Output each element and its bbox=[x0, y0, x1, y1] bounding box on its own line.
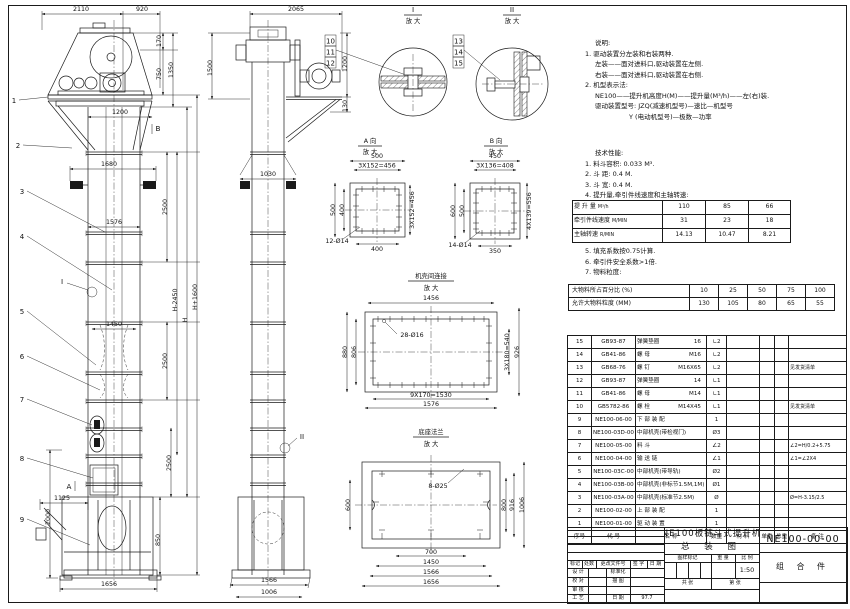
part-type: 组 合 件 bbox=[759, 552, 847, 583]
table-row: 提 升 量M³/h 1108566 bbox=[573, 201, 791, 215]
dim-label: 880 bbox=[342, 346, 349, 358]
dim-label: 1656 bbox=[423, 579, 439, 586]
process-label: 工 艺 bbox=[568, 594, 589, 603]
balloon-10: 10 bbox=[326, 38, 335, 46]
spec-line: 3. 斗 宽: 0.4 M. bbox=[575, 180, 845, 191]
dim-label: H bbox=[182, 317, 189, 322]
bom-row: 2NE100-02-00上 部 装 配1 bbox=[568, 505, 847, 518]
dim-label: 2065 bbox=[288, 6, 304, 13]
dim-label: 920 bbox=[136, 6, 148, 13]
dim-label: 926 bbox=[514, 346, 521, 358]
balloon-6: 6 bbox=[20, 353, 25, 361]
dim-label: 700 bbox=[425, 549, 437, 556]
note-line: Y (电动机型号)—极数—功率 bbox=[575, 112, 845, 123]
balloon-15: 15 bbox=[454, 60, 463, 68]
dim-label: 3X152=456 bbox=[358, 163, 396, 170]
dim-label: 1200 bbox=[112, 109, 128, 116]
note-line: 1. 驱动装置分左装和右装两种. bbox=[575, 49, 845, 60]
dim-label: 2110 bbox=[73, 6, 89, 13]
spec-line: 7. 物料粒度: bbox=[585, 267, 845, 278]
balloon-7: 7 bbox=[20, 396, 24, 404]
dim-label: 600 bbox=[450, 205, 457, 217]
note-line: 驱动装置型号: JZQ(减速机型号)—速比—机型号 bbox=[575, 101, 845, 112]
bom-row: 10GB5782-86螺 栓M14X45∟1见发货清单 bbox=[568, 401, 847, 414]
detail-i-view: I 放 大 bbox=[379, 5, 447, 116]
casing-joint-detail: 机壳间连接 放 大 28-Ø16 1456 880 806 3X180=540 … bbox=[342, 271, 521, 408]
dim-label: 170 bbox=[156, 35, 163, 47]
balloon-8: 8 bbox=[20, 455, 24, 463]
dim-label: 3X136=408 bbox=[476, 163, 514, 170]
view-b-flange: B 向 放 大 450 3X136=408 600 500 4X139=556 … bbox=[448, 136, 533, 255]
bom-row: 11GB41-86螺 母M14∟1 bbox=[568, 388, 847, 401]
performance-table: 提 升 量M³/h 1108566 牵引件线速度M/MIN 312318 主轴转… bbox=[572, 200, 791, 243]
dim-label: 500 bbox=[330, 204, 337, 216]
bom-row: 7NE100-05-00料 斗∠2∠2=H/0.2+5.75 bbox=[568, 440, 847, 453]
spec-line: 5. 填充系数按0.75计算. bbox=[585, 246, 845, 257]
holes-label: 14-Ø14 bbox=[448, 241, 471, 249]
dim-label: 1656 bbox=[101, 581, 117, 588]
dim-label: 800 bbox=[501, 499, 508, 511]
date-label: 日 期 bbox=[606, 594, 631, 603]
dim-label: 450 bbox=[489, 153, 501, 160]
detail-title: B 向 bbox=[490, 136, 503, 145]
dim-label: 1030 bbox=[260, 171, 276, 178]
detail-ii-view: II 放 大 bbox=[476, 5, 548, 120]
dim-label: 806 bbox=[351, 346, 358, 358]
detail-subtitle: 放 大 bbox=[424, 283, 439, 292]
spec-line: 6. 牵引件安全系数>1倍. bbox=[585, 257, 845, 268]
note-line: 左装——面对进料口,驱动装置在左侧. bbox=[575, 59, 845, 70]
detail-subtitle: 放 大 bbox=[424, 439, 439, 448]
bom-row: 9NE100-06-00下 部 装 配1 bbox=[568, 414, 847, 427]
holes-label: 12-Ø14 bbox=[325, 237, 348, 245]
bom-row: 3NE100-03A-00中部机壳(标准节2.5M)ØØ=H-3.15/2.5 bbox=[568, 492, 847, 505]
detail-subtitle: 放 大 bbox=[406, 16, 421, 25]
dim-label: 1500 bbox=[207, 60, 214, 76]
engineering-drawing-sheet: { "colors": { "line": "#1a1a1a", "backgr… bbox=[0, 0, 850, 609]
detail-callout-label: I bbox=[61, 277, 63, 286]
balloon-9: 9 bbox=[20, 516, 24, 524]
balloon-5: 5 bbox=[20, 308, 24, 316]
dim-label: 500 bbox=[371, 153, 383, 160]
holes-label: 8-Ø25 bbox=[428, 482, 447, 490]
dim-label: 1125 bbox=[54, 495, 70, 502]
bom-row: 6NE100-04-00输 送 链∠1∠1=∠2X4 bbox=[568, 453, 847, 466]
material-size-table: 大物料所占百分比 (%)10255075100 允许大物料粒度 (MM)1301… bbox=[568, 284, 835, 311]
table-row: 大物料所占百分比 (%)10255075100 bbox=[569, 285, 835, 298]
dim-label: 1200 bbox=[342, 56, 349, 72]
balloon-4: 4 bbox=[20, 233, 25, 241]
dim-label: 3X180=540 bbox=[504, 333, 511, 371]
bill-of-materials: 15GB93-87弹簧垫圈16∟214GB41-86螺 母M16∟213GB68… bbox=[567, 335, 847, 544]
dim-label: 400 bbox=[371, 246, 383, 253]
bom-row: 15GB93-87弹簧垫圈16∟2 bbox=[568, 336, 847, 349]
bom-row: 13GB68-76螺 钉M16X65∟2见发货清单 bbox=[568, 362, 847, 375]
general-notes: 说明: 1. 驱动装置分左装和右装两种. 左装——面对进料口,驱动装置在左侧. … bbox=[575, 38, 845, 122]
balloon-1: 1 bbox=[12, 97, 16, 105]
balloon-callouts-front: 1 2 3 4 5 6 7 8 9 bbox=[12, 97, 112, 545]
note-line: 2. 机型表示法: bbox=[575, 80, 845, 91]
base-flange-detail: 底座法兰 放 大 8-Ø25 600 800 916 1006 700 1450… bbox=[345, 427, 526, 586]
dim-label: 9X170=1530 bbox=[410, 392, 452, 399]
balloon-13: 13 bbox=[454, 38, 463, 46]
title-block: 标记 处数 更改文件号 签 字 日 期 设 计 标准化 校 对 描 图 审 核 … bbox=[567, 527, 848, 604]
detail-title: 底座法兰 bbox=[418, 427, 443, 436]
dim-label: 850 bbox=[155, 534, 162, 546]
balloon-11: 11 bbox=[326, 49, 335, 57]
dim-label: 1566 bbox=[261, 577, 277, 584]
detail-title: 机壳间连接 bbox=[415, 271, 447, 280]
side-view-dimensions: 2065 1500 1200 130 1030 1566 1006 bbox=[207, 6, 351, 597]
bom-row: 4NE100-03B-00中部机壳(非标节1.5M,1M)Ø1 bbox=[568, 479, 847, 492]
bom-row: 8NE100-03D-00中部机壳(带检视门)Ø3 bbox=[568, 427, 847, 440]
table-row: 牵引件线速度M/MIN 312318 bbox=[573, 215, 791, 229]
dim-label: 3X152=456 bbox=[409, 191, 416, 229]
dim-label: 130 bbox=[342, 100, 349, 112]
notes-title: 说明: bbox=[575, 38, 845, 49]
dim-label: 4X139=556 bbox=[526, 192, 533, 230]
technical-specs-2: 5. 填充系数按0.75计算. 6. 牵引件安全系数>1倍. 7. 物料粒度: bbox=[585, 246, 845, 278]
note-line: 右装——面对进料口,驱动装置在右侧. bbox=[575, 70, 845, 81]
detail-title: II bbox=[510, 5, 514, 14]
holes-label: 28-Ø16 bbox=[400, 331, 423, 339]
dim-label: 2000 bbox=[45, 509, 52, 525]
detail-title: A 向 bbox=[364, 136, 377, 145]
detail-subtitle: 放 大 bbox=[505, 16, 520, 25]
dim-label: 1450 bbox=[423, 559, 439, 566]
dim-label: 1566 bbox=[423, 569, 439, 576]
dim-label: 2500 bbox=[162, 353, 169, 369]
bom-row: 14GB41-86螺 母M16∟2 bbox=[568, 349, 847, 362]
date-value: 97.7 bbox=[630, 594, 665, 603]
dim-label: 2500 bbox=[162, 199, 169, 215]
drawing-title-line1: NE100板链斗式提升机 bbox=[664, 528, 760, 541]
table-row: 允许大物料粒度 (MM)130105806555 bbox=[569, 298, 835, 311]
drawing-number: NE100-00-00 bbox=[759, 528, 847, 553]
dim-label: 1450 bbox=[106, 321, 122, 328]
specs-title: 技术性能: bbox=[575, 148, 845, 159]
dim-label: 1006 bbox=[261, 589, 277, 596]
technical-specs: 技术性能: 1. 料斗容积: 0.033 M³. 2. 斗 距: 0.4 M. … bbox=[575, 148, 845, 201]
drawing-title-line2: 总 装 图 bbox=[664, 541, 760, 555]
note-line: NE100——提升机高度H(M)——提升量(M³/h)——左(右)装. bbox=[575, 91, 845, 102]
dim-label: 1576 bbox=[423, 401, 439, 408]
balloon-14: 14 bbox=[454, 49, 463, 57]
dim-label: 400 bbox=[339, 204, 346, 216]
dim-label: H+1600 bbox=[192, 284, 199, 310]
dim-label: 1006 bbox=[519, 497, 526, 513]
table-row: 主轴转速R/MIN 14.1310.478.21 bbox=[573, 229, 791, 243]
dim-label: 1456 bbox=[423, 295, 439, 302]
dim-label: 350 bbox=[489, 248, 501, 255]
spec-line: 1. 料斗容积: 0.033 M³. bbox=[575, 159, 845, 170]
dim-label: 2500 bbox=[166, 455, 173, 471]
side-elevation-view: II bbox=[232, 20, 342, 585]
dim-label: 1680 bbox=[101, 161, 117, 168]
dim-label: 1350 bbox=[168, 62, 175, 78]
dim-label: 750 bbox=[156, 68, 163, 80]
bom-row: 5NE100-03C-00中部机壳(带导轨)Ø2 bbox=[568, 466, 847, 479]
dim-label: 500 bbox=[459, 205, 466, 217]
detail-callout-label: II bbox=[300, 432, 304, 441]
balloon-2: 2 bbox=[16, 142, 20, 150]
bom-row: 12GB93-87弹簧垫圈14∟1 bbox=[568, 375, 847, 388]
dim-label: 1576 bbox=[106, 219, 122, 226]
view-arrow-label: A bbox=[67, 482, 72, 491]
scale-value: 1:50 bbox=[735, 562, 760, 579]
spec-line: 2. 斗 距: 0.4 M. bbox=[575, 169, 845, 180]
view-arrow-label: B bbox=[156, 124, 161, 133]
detail-title: I bbox=[412, 5, 414, 14]
balloon-12: 12 bbox=[326, 60, 335, 68]
dim-label: H-2450 bbox=[172, 288, 179, 311]
view-a-flange: A 向 放 大 500 3X152=456 500 400 3X152=456 … bbox=[325, 136, 416, 253]
front-view-dimensions: 2110 920 170 750 1350 1200 B 1680 2500 1… bbox=[40, 6, 200, 592]
right-panel: 说明: 1. 驱动装置分左装和右装两种. 左装——面对进料口,驱动装置在左侧. … bbox=[563, 0, 850, 609]
dim-label: 600 bbox=[345, 499, 352, 511]
drawing-canvas: 2110 920 170 750 1350 1200 B 1680 2500 1… bbox=[0, 0, 563, 609]
balloon-3: 3 bbox=[20, 188, 24, 196]
spec-line: 4. 提升量,牵引件线速度和主轴转速: bbox=[575, 190, 845, 201]
dim-label: 916 bbox=[509, 499, 516, 511]
